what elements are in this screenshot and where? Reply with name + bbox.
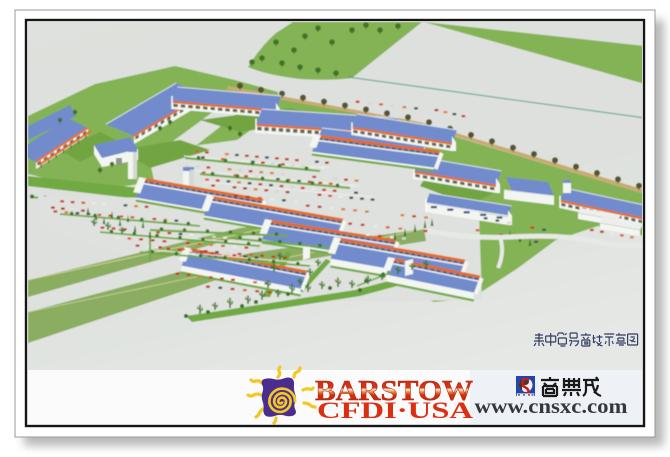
svg-text:CFDI·USA: CFDI·USA xyxy=(317,398,473,424)
svg-text:www.cnsxc.com: www.cnsxc.com xyxy=(475,396,628,418)
